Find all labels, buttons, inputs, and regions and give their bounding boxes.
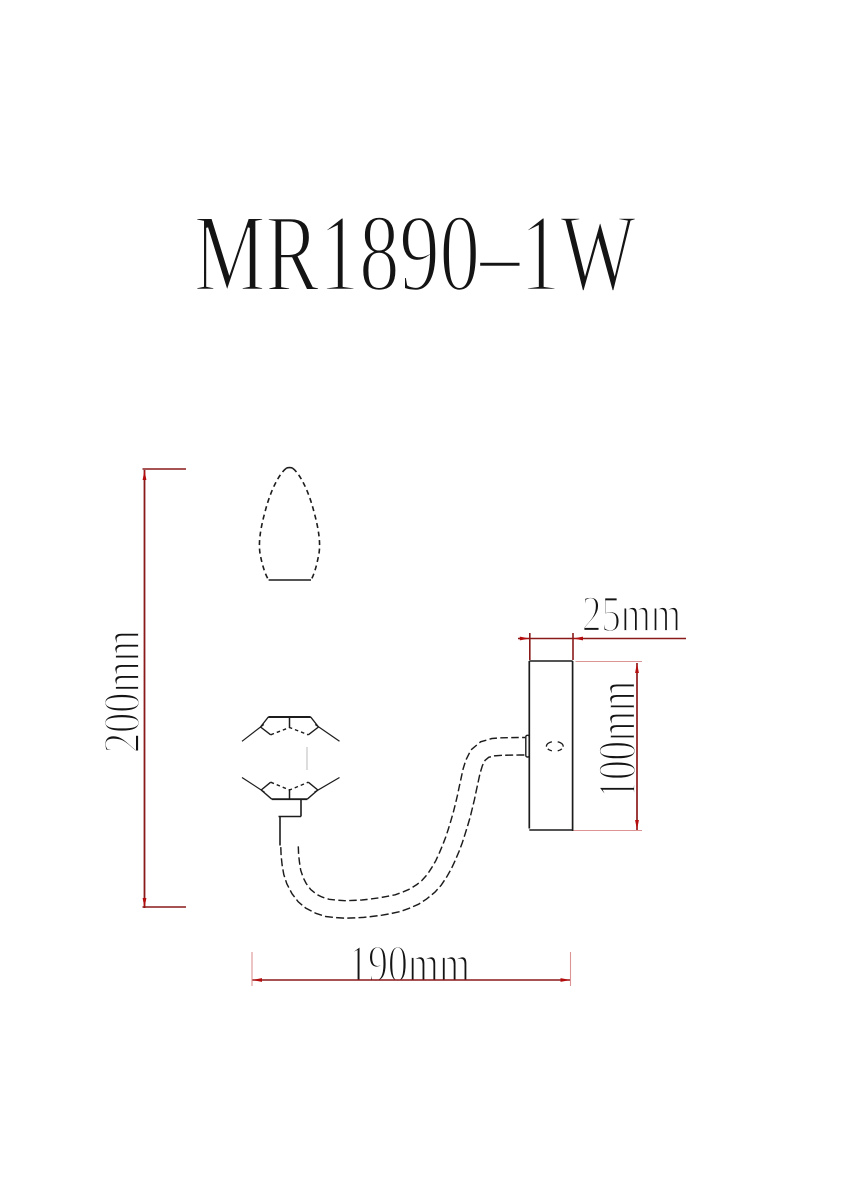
svg-text:190mm: 190mm [348, 936, 470, 993]
svg-text:25mm: 25mm [582, 586, 681, 642]
svg-text:100mm: 100mm [587, 681, 647, 799]
svg-text:MR1890–1W: MR1890–1W [194, 192, 636, 314]
svg-text:200mm: 200mm [94, 630, 151, 753]
